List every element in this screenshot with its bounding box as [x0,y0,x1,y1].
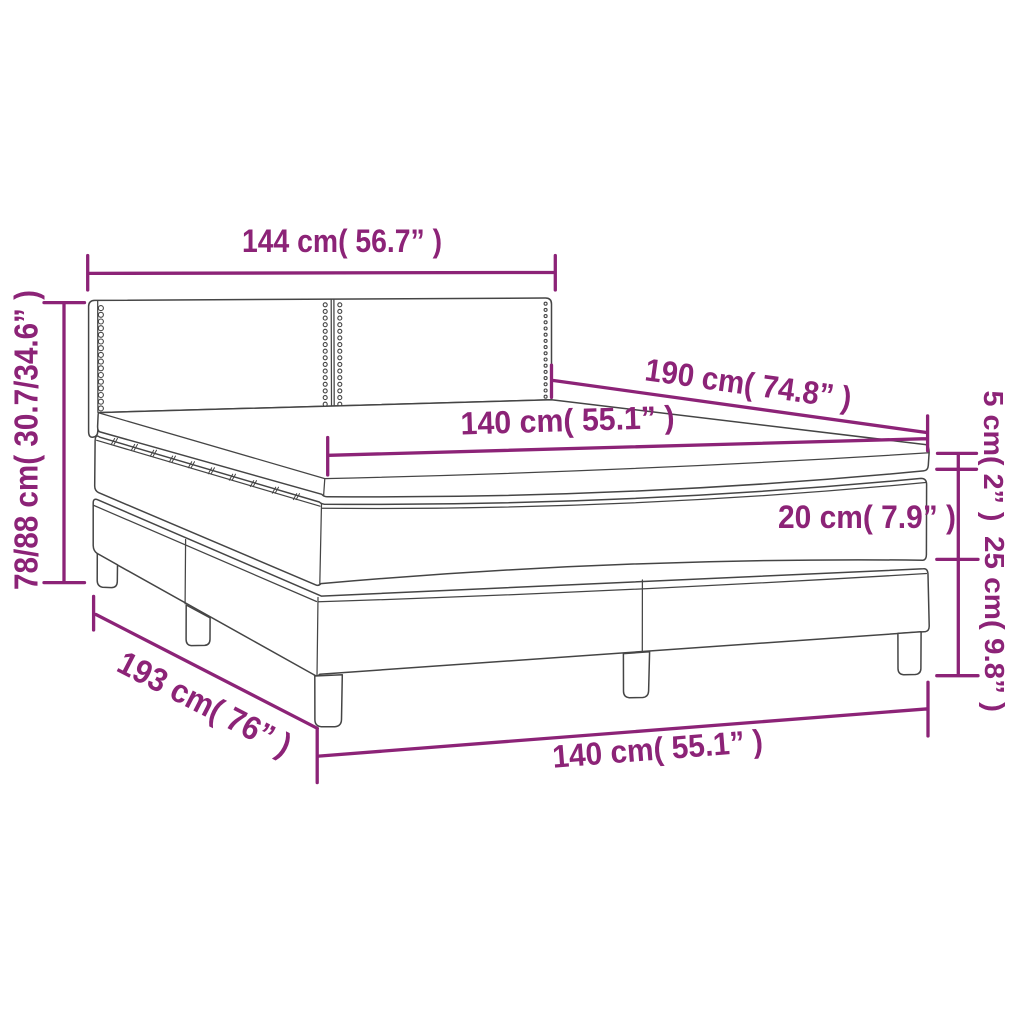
svg-text:144 cm( 56.7” ): 144 cm( 56.7” ) [242,223,442,259]
svg-text:20 cm( 7.9” ): 20 cm( 7.9” ) [778,499,956,535]
svg-text:5 cm( 2” ): 5 cm( 2” ) [978,391,1009,522]
svg-text:140 cm( 55.1” ): 140 cm( 55.1” ) [460,399,675,442]
svg-text:25 cm( 9.8” ): 25 cm( 9.8” ) [979,536,1010,712]
svg-text:78/88 cm( 30.7/34.6” ): 78/88 cm( 30.7/34.6” ) [8,290,45,590]
